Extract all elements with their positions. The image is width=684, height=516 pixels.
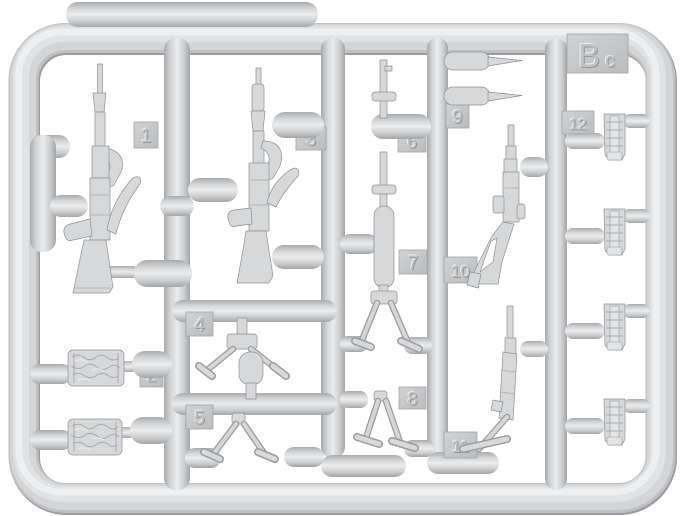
part-11-machine-gun <box>463 306 517 449</box>
code-letter-small: c <box>605 50 615 72</box>
runner-vertical-4 <box>545 38 567 490</box>
part-tab-7: 7 <box>399 250 427 274</box>
log-bundle <box>68 419 122 455</box>
part-9-pointed-rods <box>444 52 522 105</box>
stock <box>237 231 273 283</box>
tab-number: 1 <box>141 126 152 147</box>
part-tab-9: 9 <box>446 104 469 128</box>
pistol-grip <box>64 219 92 241</box>
stock <box>73 240 113 293</box>
top-runner-bar <box>66 2 318 27</box>
part-2-log-bundles <box>68 350 124 455</box>
part-tab-12: 12 <box>562 111 594 134</box>
sprue-photo: 1 2 3 4 5 6 7 8 9 10 11 12 <box>0 0 684 516</box>
part-1-light-machine-gun <box>64 64 141 293</box>
code-letter-large: B <box>578 37 600 74</box>
part-tab-5: 5 <box>186 405 213 429</box>
part-tab-4: 4 <box>186 312 213 336</box>
part-8-bipod-upper <box>355 285 419 349</box>
runner-2-foot <box>321 455 406 477</box>
pistol-grip <box>228 208 252 227</box>
ammo-pouch <box>565 209 650 255</box>
part-5-bipod <box>204 413 275 459</box>
part-tab-8: 8 <box>399 387 426 409</box>
part-tab-1: 1 <box>134 122 158 148</box>
code-tab-Bc: B c <box>567 34 628 74</box>
ammo-pouch <box>565 399 650 445</box>
part-6-gun-barrel <box>372 60 396 118</box>
part-12-ammo-pouches <box>565 114 650 445</box>
part-7-gun-barrel <box>372 152 396 288</box>
sprue-drawing: 1 2 3 4 5 6 7 8 9 10 11 12 <box>0 0 684 516</box>
tab-number: 9 <box>452 107 462 127</box>
tab-number: 8 <box>407 389 417 409</box>
tab-number: 12 <box>569 117 587 134</box>
tab-number: 4 <box>194 315 205 336</box>
log-bundle <box>68 350 124 386</box>
ammo-pouch <box>565 304 650 350</box>
tab-number: 7 <box>408 253 419 274</box>
tab-number: 5 <box>194 408 205 429</box>
tab-number: 10 <box>451 262 470 281</box>
